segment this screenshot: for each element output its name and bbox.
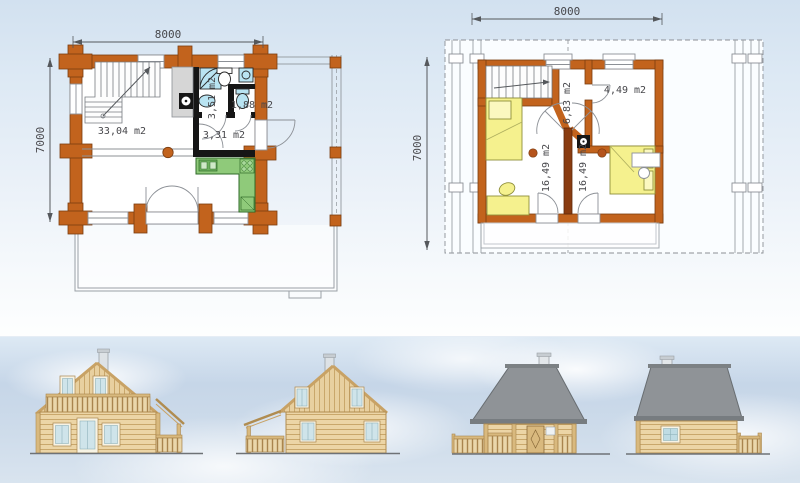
- dim-upper-depth: 7000: [411, 135, 424, 162]
- architectural-sheet: 8000 7000 33,04 m2 3,51 m2 1,88 m2 3,31 …: [0, 0, 800, 483]
- fireplace-icon: [172, 67, 193, 117]
- roof-plane: [636, 367, 742, 418]
- terrace-floor: [76, 225, 336, 290]
- elevation-front: [30, 349, 203, 454]
- label-bedroom-right: 16,49 m2: [578, 144, 589, 192]
- elevation-side: [626, 356, 770, 454]
- elevation-rear: [236, 354, 400, 454]
- dim-upper-width: 8000: [554, 5, 581, 18]
- side-window: [661, 426, 680, 443]
- elevation-side-terrace: [452, 353, 610, 454]
- toilet-icon: [219, 72, 231, 86]
- dim-ground-depth: 7000: [34, 127, 47, 154]
- terrace-balustrade: [488, 436, 512, 453]
- lamp-box: [546, 427, 555, 435]
- ridge-cap: [505, 364, 559, 368]
- post-dot-left: [529, 149, 537, 157]
- eave-strip: [634, 416, 744, 421]
- timber-post: [163, 147, 173, 157]
- center-partition-wall: [564, 128, 572, 214]
- floor-plans-and-elevations-drawing: 8000 7000 33,04 m2 3,51 m2 1,88 m2 3,31 …: [0, 0, 800, 483]
- balcony: [481, 223, 659, 248]
- pergola-columns: [267, 55, 341, 226]
- label-bathroom: 3,51 m2: [207, 77, 218, 119]
- roof-plane: [472, 367, 585, 421]
- label-bedroom-left: 16,49 m2: [541, 144, 552, 192]
- steps-railing: [452, 434, 484, 453]
- ground-floor-plan: 8000 7000 33,04 m2 3,51 m2 1,88 m2 3,31 …: [34, 28, 341, 298]
- ridge-cap: [648, 364, 731, 368]
- desk-left-icon: [487, 196, 529, 215]
- side-railing: [737, 433, 762, 453]
- dim-ground-width: 8000: [155, 28, 182, 41]
- label-hall: 3,31 m2: [203, 130, 245, 141]
- label-upper-hall: 6,83 m2: [562, 82, 573, 124]
- label-upper-bathroom: 4,49 m2: [604, 85, 646, 96]
- side-entrance-door: [255, 120, 295, 150]
- balcony-balustrade: [46, 397, 150, 412]
- upper-floor-plan: 8000 7000 6,83 m2 4,49 m2 16,49 m2 16,49…: [411, 5, 763, 253]
- washer-icon: [239, 68, 253, 82]
- label-living-room: 33,04 m2: [98, 126, 146, 137]
- chair-right-icon: [639, 168, 650, 179]
- rear-porch: [244, 411, 284, 453]
- stove-icon: [240, 159, 254, 173]
- desk-right-icon: [632, 153, 660, 167]
- eave-strip: [470, 419, 587, 424]
- label-wc: 1,88 m2: [231, 100, 273, 111]
- balcony-rail: [46, 394, 150, 397]
- upper-stairs-icon: [486, 66, 552, 98]
- log-wall: [640, 421, 737, 453]
- post-dot-right: [598, 149, 606, 157]
